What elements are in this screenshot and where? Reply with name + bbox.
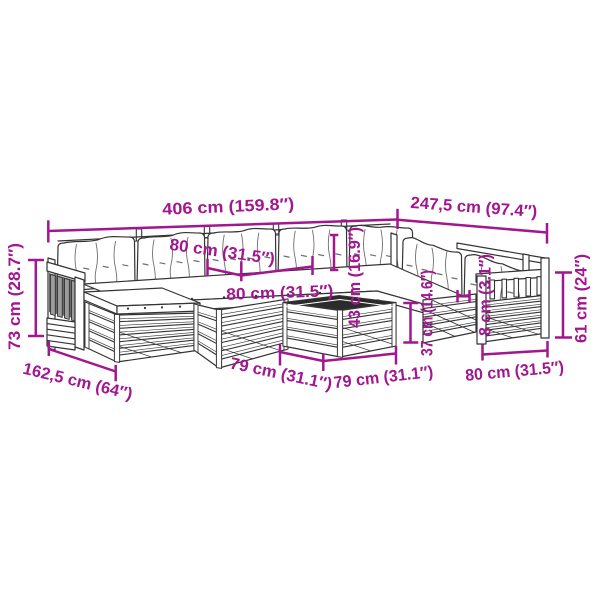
svg-text:43 cm (16.9″): 43 cm (16.9″): [346, 227, 364, 328]
svg-text:61 cm (24″): 61 cm (24″): [573, 254, 591, 343]
svg-text:80 cm (31.5″): 80 cm (31.5″): [226, 282, 334, 304]
svg-text:73 cm (28.7″): 73 cm (28.7″): [6, 243, 24, 350]
svg-text:37 cm (14.6″): 37 cm (14.6″): [419, 270, 437, 356]
svg-text:8 cm (3.1″): 8 cm (3.1″): [477, 254, 495, 336]
